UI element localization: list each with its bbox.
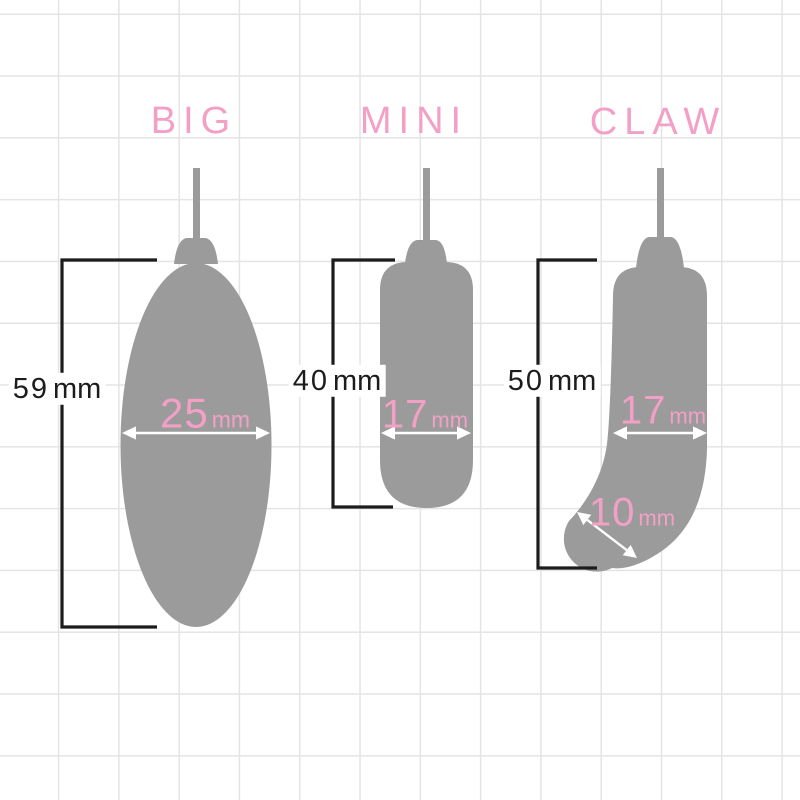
big-width-number: 25 <box>160 398 209 431</box>
claw-height-value: 50mm <box>504 365 601 397</box>
claw-width-value: 17mm <box>620 395 706 426</box>
big-width-unit: mm <box>212 412 250 430</box>
big-height-value: 59mm <box>9 373 106 405</box>
size-comparison-diagram: BIG MINI CLAW 59mm 40mm 50mm 25mm 17mm 1… <box>0 0 800 800</box>
mini-height-number: 40 <box>293 366 329 396</box>
claw-tip-number: 10 <box>589 497 636 528</box>
mini-silhouette <box>380 168 473 508</box>
mini-cord <box>423 168 430 242</box>
mini-height-unit: mm <box>333 366 381 396</box>
claw-label: CLAW <box>590 103 726 141</box>
claw-cord <box>657 168 664 240</box>
mini-cap <box>405 240 447 263</box>
mini-height-value: 40mm <box>289 365 386 397</box>
big-height-unit: mm <box>53 374 101 404</box>
big-label: BIG <box>151 102 237 140</box>
big-height-number: 59 <box>13 374 49 404</box>
claw-width-number: 17 <box>620 395 667 426</box>
claw-tip-value: 10mm <box>589 497 675 528</box>
big-cord <box>193 168 200 242</box>
mini-width-unit: mm <box>431 411 468 428</box>
mini-label: MINI <box>360 102 468 140</box>
mini-width-value: 17mm <box>382 399 468 430</box>
claw-width-unit: mm <box>669 407 706 424</box>
mini-body <box>380 262 473 508</box>
big-cap <box>174 238 218 264</box>
mini-width-number: 17 <box>382 399 429 430</box>
big-body <box>121 263 272 627</box>
claw-height-number: 50 <box>508 366 544 396</box>
claw-height-unit: mm <box>548 366 596 396</box>
big-width-value: 25mm <box>160 398 250 431</box>
claw-tip-unit: mm <box>638 509 675 526</box>
claw-cap <box>636 237 684 268</box>
